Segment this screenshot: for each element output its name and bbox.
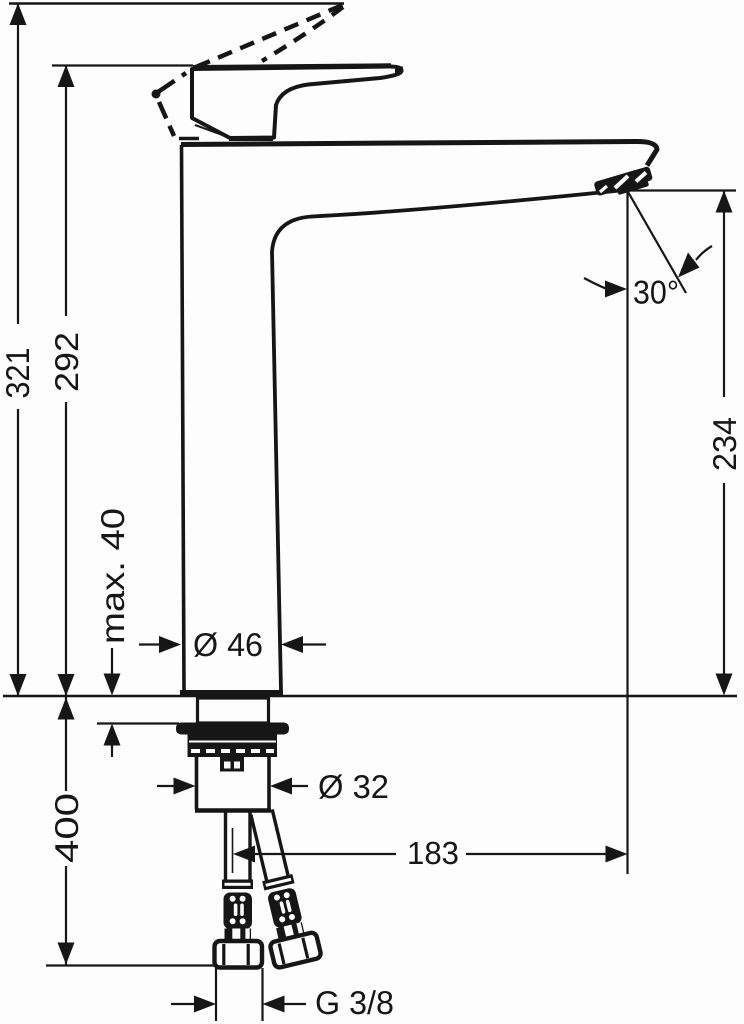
svg-text:Ø 46: Ø 46 <box>193 626 263 663</box>
svg-text:292: 292 <box>48 332 85 392</box>
svg-text:400: 400 <box>48 793 85 863</box>
svg-text:234: 234 <box>706 417 743 471</box>
svg-text:183: 183 <box>407 835 459 871</box>
svg-text:Ø 32: Ø 32 <box>318 768 389 805</box>
svg-text:G 3/8: G 3/8 <box>315 984 394 1021</box>
svg-text:30°: 30° <box>633 274 679 311</box>
svg-text:max. 40: max. 40 <box>94 508 131 644</box>
svg-text:321: 321 <box>0 348 36 399</box>
